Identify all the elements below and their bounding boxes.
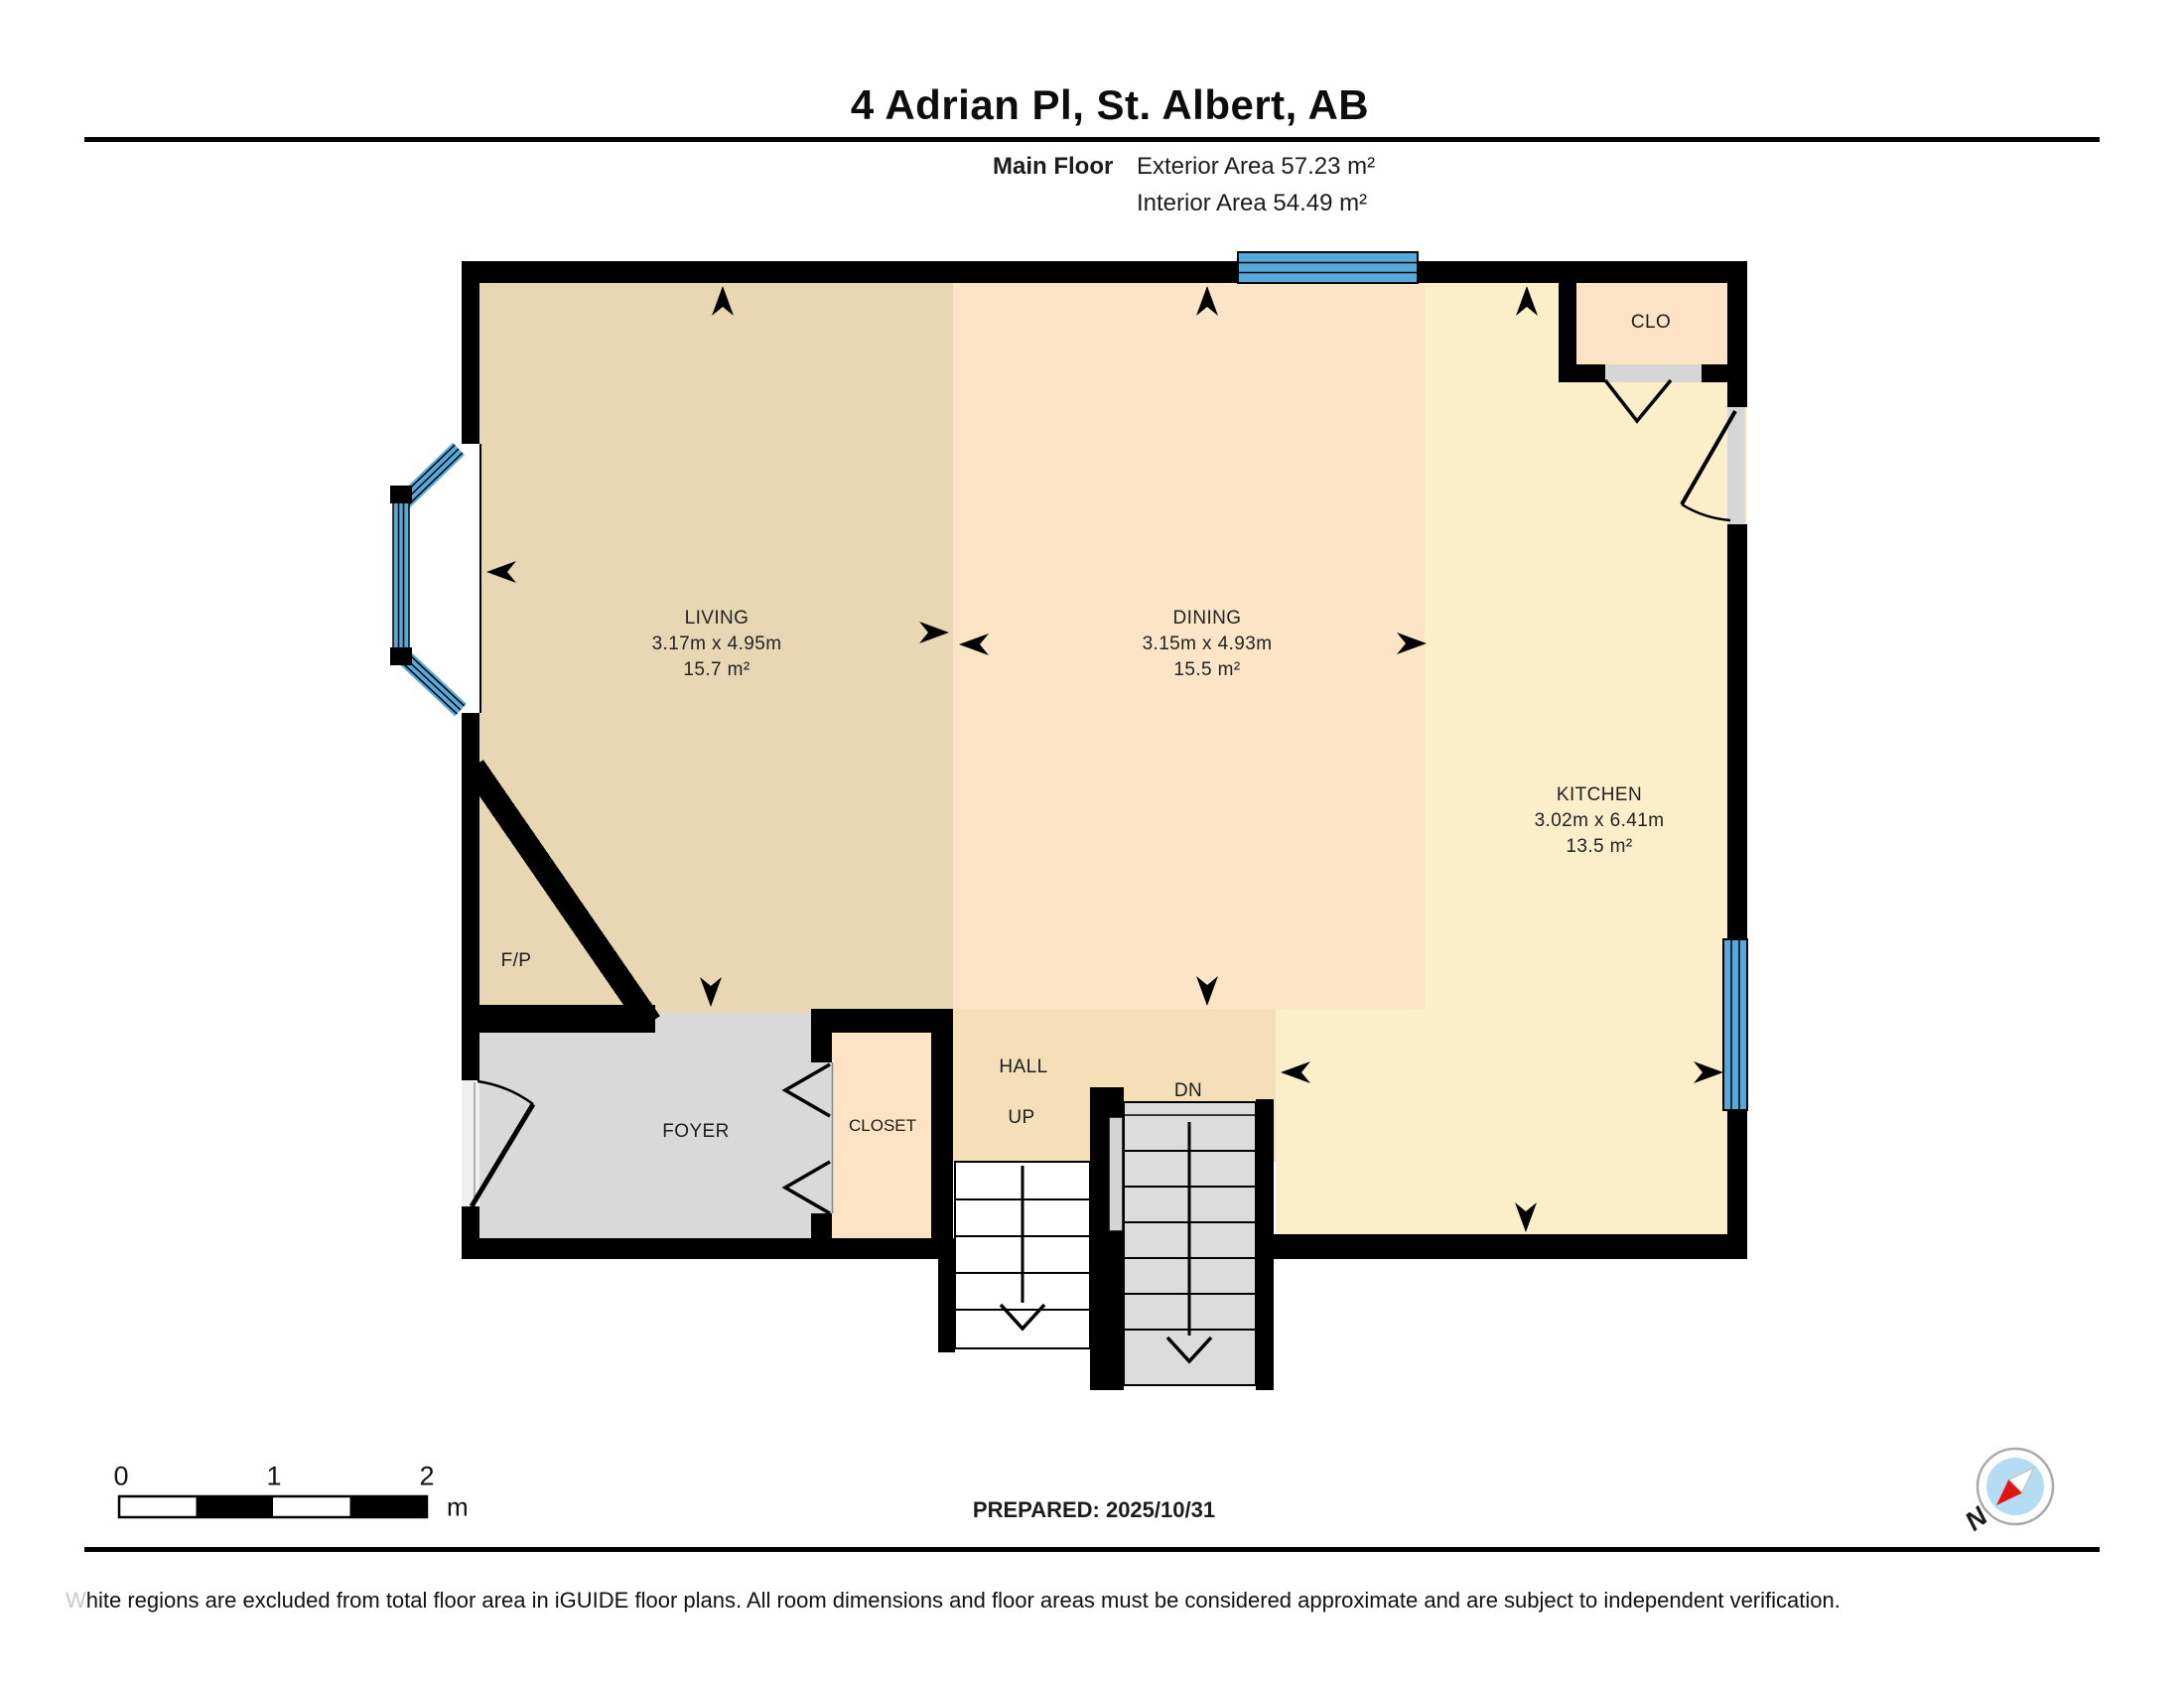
scale-bar (119, 1496, 427, 1517)
dining-room-label: DINING 3.15m x 4.93m 15.5 m² (1143, 606, 1273, 683)
disclaimer-text: White regions are excluded from total fl… (66, 1588, 1841, 1614)
room-area: 15.5 m² (1143, 657, 1273, 683)
stairs-up-label: UP (1008, 1107, 1034, 1129)
room-fills (394, 261, 1747, 1259)
room-dimensions: 3.17m x 4.95m (652, 632, 782, 657)
scale-unit: m (447, 1492, 469, 1523)
kitchen-label: KITCHEN 3.02m x 6.41m 13.5 m² (1535, 782, 1665, 860)
compass-icon (1978, 1449, 2053, 1524)
down-stairs (1109, 1102, 1256, 1385)
footer-rule (84, 1547, 2100, 1552)
clo-label: CLO (1631, 312, 1671, 334)
scale-tick-1: 1 (266, 1462, 281, 1492)
disclaimer-rest: hite regions are excluded from total flo… (86, 1588, 1841, 1613)
stairs-down-label: DN (1174, 1080, 1202, 1102)
fireplace-label: F/P (501, 950, 532, 972)
right-window-icon (1723, 939, 1747, 1110)
foyer-fill (462, 1013, 834, 1259)
foyer-label: FOYER (662, 1121, 729, 1143)
room-name: DINING (1143, 606, 1273, 632)
header-rule (84, 137, 2100, 142)
floor-plan (0, 0, 2184, 1688)
scale-tick-0: 0 (113, 1462, 128, 1492)
scale-tick-2: 2 (419, 1462, 434, 1492)
up-stairs (955, 1162, 1090, 1348)
floor-plan-page: 4 Adrian Pl, St. Albert, AB Main Floor E… (0, 0, 2184, 1688)
closet-label: CLOSET (849, 1116, 916, 1136)
interior-area: Interior Area 54.49 m² (1137, 190, 1367, 217)
room-area: 15.7 m² (652, 657, 782, 683)
stair-railing (1109, 1117, 1123, 1231)
floor-label: Main Floor (993, 153, 1113, 181)
room-name: KITCHEN (1535, 782, 1665, 808)
room-name: LIVING (652, 606, 782, 632)
disclaimer-lead: W (66, 1588, 86, 1613)
page-title: 4 Adrian Pl, St. Albert, AB (851, 81, 1369, 129)
hall-label: HALL (999, 1056, 1047, 1078)
living-room-label: LIVING 3.17m x 4.95m 15.7 m² (652, 606, 782, 683)
room-dimensions: 3.02m x 6.41m (1535, 808, 1665, 834)
exterior-area: Exterior Area 57.23 m² (1137, 153, 1375, 181)
room-dimensions: 3.15m x 4.93m (1143, 632, 1273, 657)
top-window-icon (1238, 252, 1418, 283)
prepared-date: PREPARED: 2025/10/31 (973, 1497, 1215, 1523)
room-area: 13.5 m² (1535, 834, 1665, 860)
